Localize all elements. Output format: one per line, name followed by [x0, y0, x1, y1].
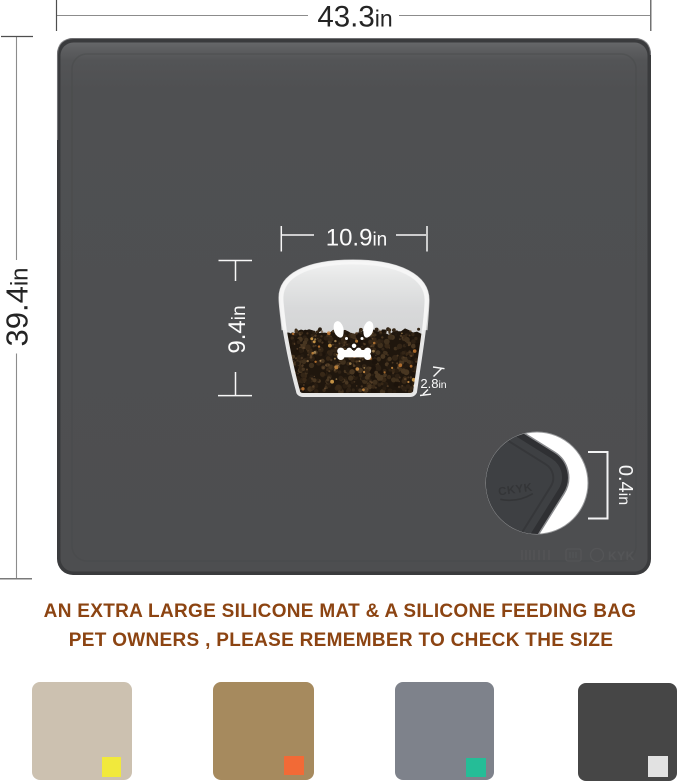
svg-text:KYK: KYK — [608, 549, 635, 563]
svg-text:9.4in: 9.4in — [224, 305, 251, 353]
svg-text:AN EXTRA LARGE SILICONE MAT &: AN EXTRA LARGE SILICONE MAT & A SILICONE… — [44, 601, 637, 622]
svg-text:43.3in: 43.3in — [317, 1, 392, 34]
svg-text:PET OWNERS , PLEASE REMEMBER T: PET OWNERS , PLEASE REMEMBER TO CHECK TH… — [69, 630, 613, 651]
svg-text:2.8in: 2.8in — [420, 376, 446, 391]
svg-text:10.9in: 10.9in — [326, 225, 388, 252]
svg-text:0.4in: 0.4in — [614, 465, 636, 505]
